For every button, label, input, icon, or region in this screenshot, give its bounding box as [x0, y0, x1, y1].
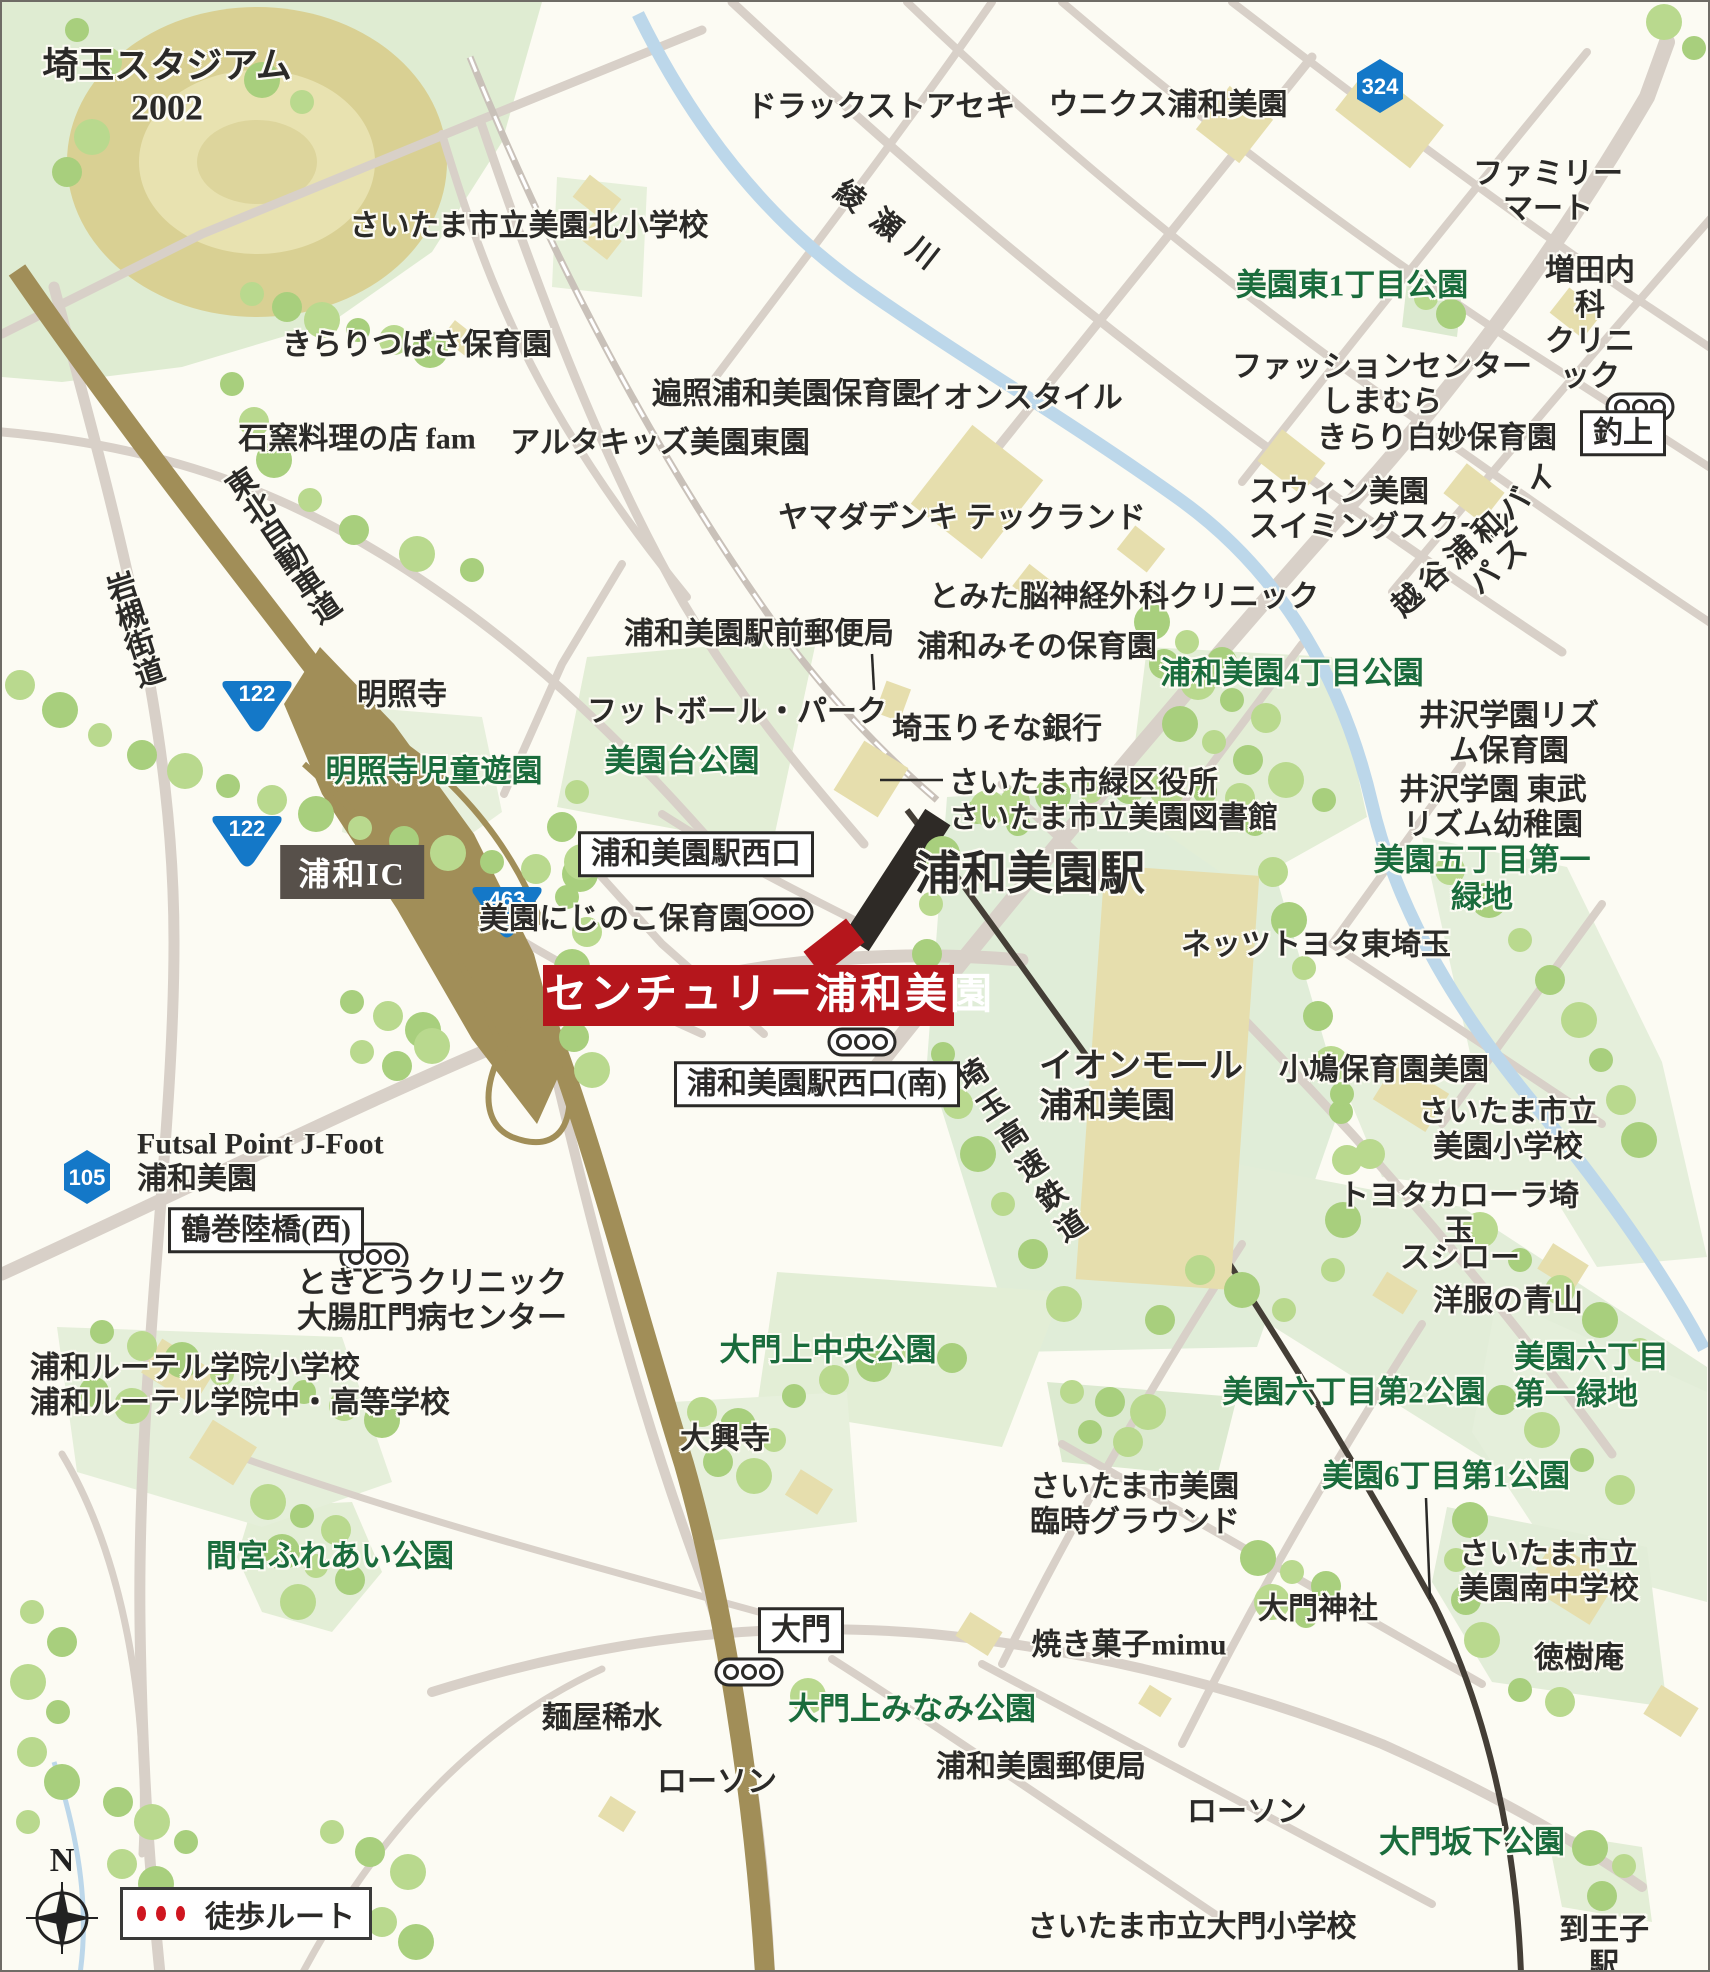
svg-text:122: 122	[229, 816, 266, 841]
bus-stop-icon	[746, 899, 812, 925]
property-banner: センチュリー浦和美園	[545, 967, 952, 1024]
bus-stop-icon	[716, 1659, 782, 1685]
sign-daimon: 大門	[758, 1607, 844, 1653]
sign-tsuriage: 釣上	[1580, 410, 1666, 456]
walk-route-dot-icon	[137, 1906, 146, 1921]
route-shield-105: 105	[64, 1150, 110, 1204]
bus-stop-icon	[829, 1029, 895, 1055]
compass-icon	[24, 1880, 100, 1956]
walk-route-dot-icon	[176, 1906, 185, 1921]
sign-urawamisono-west-exit-south: 浦和美園駅西口(南)	[674, 1061, 960, 1107]
route-shield-122: 122	[212, 816, 281, 867]
compass-north-label: N	[22, 1842, 102, 1880]
svg-text:324: 324	[1362, 74, 1399, 99]
walk-route-legend: 徒歩ルート	[120, 1887, 372, 1940]
route-shield-122: 122	[222, 681, 291, 732]
area-map: 122122463324105 センチュリー浦和美園 N 徒歩ルート 埼玉スタジ…	[0, 0, 1710, 1972]
svg-text:463: 463	[489, 887, 526, 912]
svg-text:122: 122	[239, 681, 276, 706]
sign-tsurumaki-bridge-west: 鶴巻陸橋(西)	[168, 1207, 364, 1253]
walk-route-label: 徒歩ルート	[205, 1892, 355, 1936]
walk-route-dot-icon	[156, 1906, 165, 1921]
svg-text:105: 105	[69, 1165, 106, 1190]
sign-urawamisono-west-exit: 浦和美園駅西口	[578, 831, 814, 877]
urawa-ic-label: 浦和IC	[280, 845, 424, 899]
compass-rose: N	[22, 1842, 102, 1961]
